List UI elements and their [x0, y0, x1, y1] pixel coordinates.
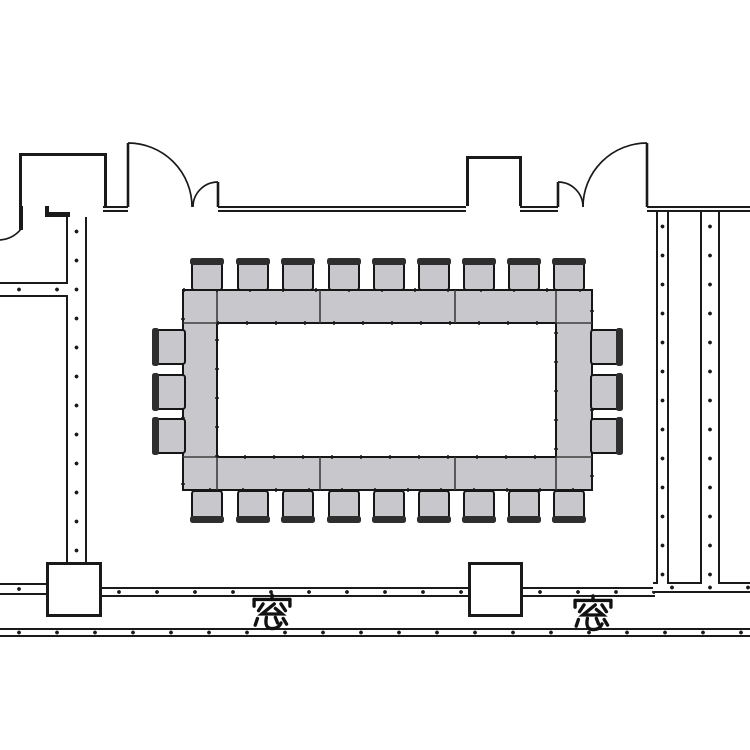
chair-seat: [464, 262, 494, 290]
chair-seat: [554, 491, 584, 519]
chair-top: [190, 258, 224, 290]
chair-back: [190, 258, 224, 265]
window-label-stroke: [580, 605, 584, 612]
left-edge-wall-curve: [0, 229, 21, 240]
chair-bottom: [327, 491, 361, 523]
chair-back: [327, 258, 361, 265]
door-left-large-swing: [128, 143, 192, 207]
chair-right: [591, 417, 623, 455]
chair-top: [462, 258, 496, 290]
chair-back: [507, 516, 541, 523]
chair-back: [152, 417, 159, 455]
chair-seat: [591, 419, 620, 453]
chair-back: [372, 258, 406, 265]
chair-seat: [419, 491, 449, 519]
chair-bottom: [507, 491, 541, 523]
chair-top: [552, 258, 586, 290]
chair-seat: [238, 262, 268, 290]
chair-seat: [156, 419, 185, 453]
chair-back: [152, 373, 159, 411]
chair-back: [236, 258, 270, 265]
chair-seat: [238, 491, 268, 519]
chair-top: [372, 258, 406, 290]
floorplan-drawing: [0, 0, 750, 750]
chair-bottom: [552, 491, 586, 523]
chair-seat: [156, 330, 185, 364]
chair-seat: [283, 262, 313, 290]
chair-seat: [156, 375, 185, 409]
chair-back: [281, 258, 315, 265]
chair-seat: [283, 491, 313, 519]
window-label-stroke: [596, 618, 598, 624]
chair-top: [417, 258, 451, 290]
chair-back: [552, 516, 586, 523]
door-right-large-swing: [583, 143, 647, 207]
chair-seat: [509, 491, 539, 519]
chair-back: [507, 258, 541, 265]
window-label-stroke: [583, 605, 603, 615]
chair-bottom: [417, 491, 451, 523]
chair-left: [152, 373, 185, 411]
chair-back: [462, 258, 496, 265]
chair-bottom: [190, 491, 224, 523]
chair-left: [152, 328, 185, 366]
chair-seat: [329, 491, 359, 519]
chair-seat: [509, 262, 539, 290]
window-label-stroke: [255, 618, 257, 625]
floor-plan: [0, 0, 750, 750]
chair-seat: [192, 491, 222, 519]
chair-seat: [464, 491, 494, 519]
chair-back: [616, 417, 623, 455]
window-label-stroke: [281, 604, 285, 611]
chair-top: [507, 258, 541, 290]
conference-table-inner-opening: [217, 323, 556, 457]
chair-back: [152, 328, 159, 366]
window-label-stroke: [259, 604, 263, 611]
door-left-small-swing: [193, 182, 218, 207]
window-label-stroke: [283, 618, 286, 624]
window-label-stroke: [275, 617, 277, 623]
chair-back: [236, 516, 270, 523]
chair-seat: [419, 262, 449, 290]
window-label-stroke: [576, 619, 578, 626]
door-right-small-swing: [558, 182, 583, 207]
chair-back: [552, 258, 586, 265]
chair-back: [372, 516, 406, 523]
chair-back: [281, 516, 315, 523]
window-label-left: [254, 595, 290, 629]
chair-back: [462, 516, 496, 523]
chair-back: [417, 516, 451, 523]
window-label-stroke: [604, 619, 607, 625]
chair-bottom: [372, 491, 406, 523]
window-label-right: [575, 596, 611, 630]
chair-seat: [329, 262, 359, 290]
chair-bottom: [236, 491, 270, 523]
chair-seat: [374, 262, 404, 290]
chair-top: [281, 258, 315, 290]
chair-right: [591, 373, 623, 411]
chair-seat: [374, 491, 404, 519]
chair-right: [591, 328, 623, 366]
chair-top: [327, 258, 361, 290]
window-label-stroke: [262, 604, 282, 614]
chair-seat: [554, 262, 584, 290]
chair-bottom: [462, 491, 496, 523]
chair-top: [236, 258, 270, 290]
chair-bottom: [281, 491, 315, 523]
chair-back: [190, 516, 224, 523]
window-label-stroke: [602, 605, 606, 612]
chair-back: [417, 258, 451, 265]
chair-back: [616, 328, 623, 366]
chair-seat: [591, 375, 620, 409]
chair-back: [327, 516, 361, 523]
chair-seat: [591, 330, 620, 364]
chair-left: [152, 417, 185, 455]
chair-seat: [192, 262, 222, 290]
chair-back: [616, 373, 623, 411]
